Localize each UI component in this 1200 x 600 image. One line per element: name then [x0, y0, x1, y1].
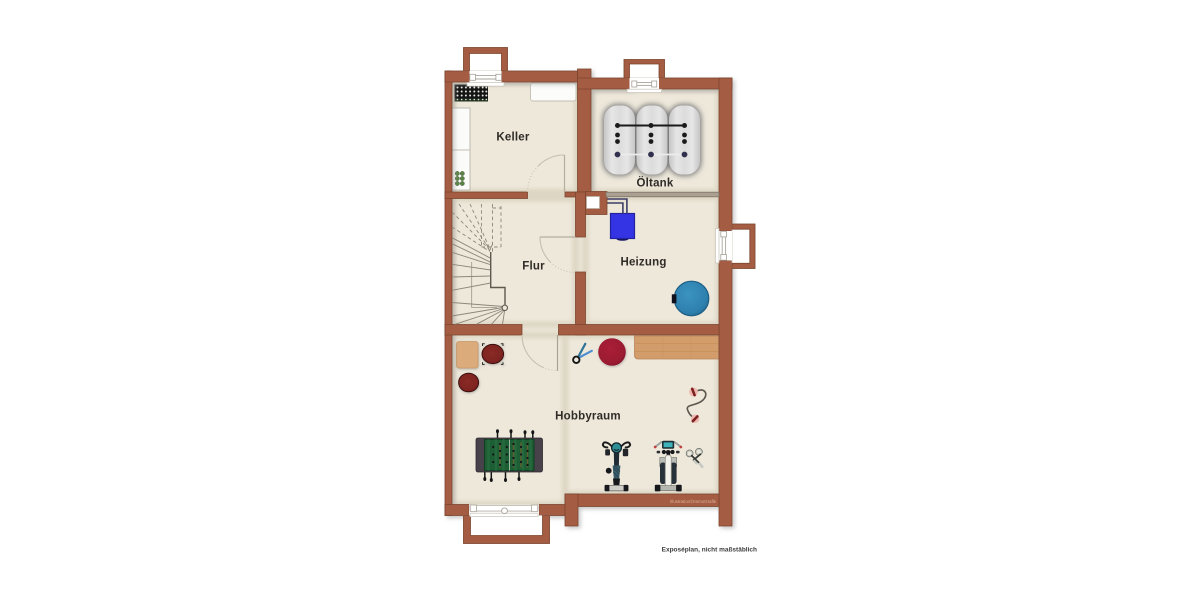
svg-text:Flur: Flur — [522, 261, 545, 273]
svg-text:Exposéplan, nicht maßstäblich: Exposéplan, nicht maßstäblich — [662, 547, 757, 554]
svg-text:Illustration©ImmoGrafik: Illustration©ImmoGrafik — [670, 499, 717, 504]
svg-text:Heizung: Heizung — [620, 257, 666, 269]
svg-text:Öltank: Öltank — [637, 177, 674, 190]
svg-text:Keller: Keller — [496, 132, 529, 144]
svg-text:Hobbyraum: Hobbyraum — [555, 411, 621, 423]
